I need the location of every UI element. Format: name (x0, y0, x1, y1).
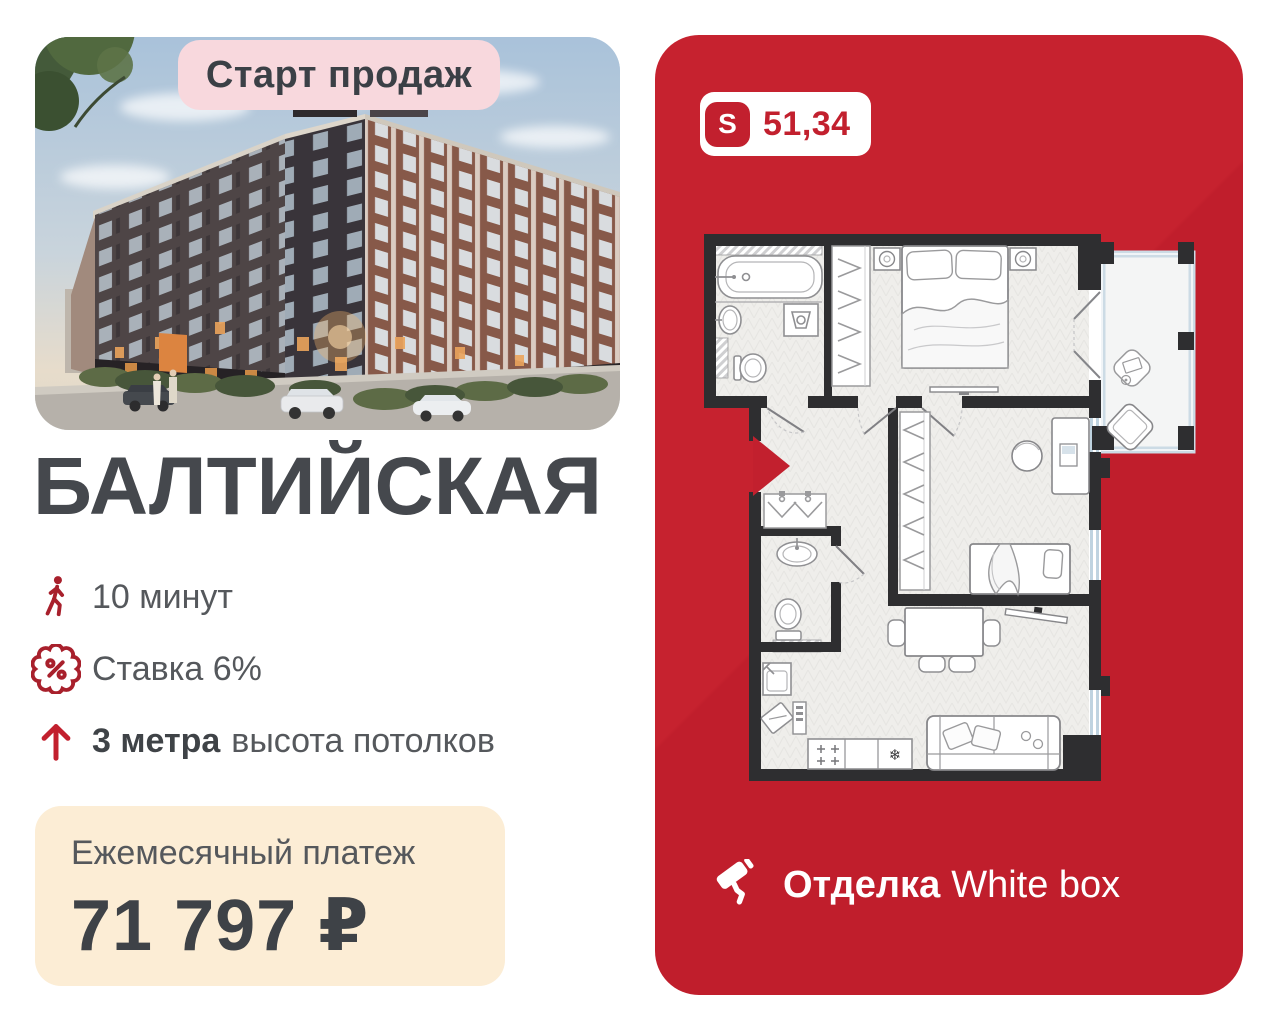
payment-value: 71 797 ₽ (71, 883, 469, 967)
area-letter-chip: S (705, 102, 750, 147)
finish-name: White box (951, 864, 1120, 906)
start-sales-label: Старт продаж (206, 54, 472, 97)
ceiling-height-value: 3 метра (92, 722, 220, 760)
feature-walk-time: 10 минут (30, 572, 495, 622)
monthly-payment-card: Ежемесячный платеж 71 797 ₽ (35, 806, 505, 986)
arrow-up-icon (30, 718, 82, 764)
paint-roller-icon (713, 859, 761, 912)
area-badge: S 51,34 (700, 92, 871, 156)
coat-rack (764, 491, 826, 528)
feature-mortgage-rate-label: Ставка 6% (92, 650, 262, 689)
area-value: 51,34 (763, 105, 851, 144)
building-photo: Старт продаж (35, 37, 620, 430)
feature-ceiling-height-label: 3 метравысота потолков (92, 722, 495, 761)
feature-mortgage-rate: Ставка 6% (30, 644, 495, 694)
project-title: БАЛТИЙСКАЯ (33, 444, 633, 530)
finish-label: ОтделкаWhite box (783, 864, 1120, 907)
ceiling-height-caption: высота потолков (231, 722, 495, 760)
feature-list: 10 минут Ставка 6% (30, 572, 495, 766)
sofa (927, 716, 1060, 770)
fridge-snowflake: ❄ (889, 747, 902, 764)
walking-person-icon (30, 574, 82, 620)
percent-seal-icon (30, 644, 82, 694)
floor-plan: ❄ (700, 230, 1200, 786)
finish-row: ОтделкаWhite box (713, 854, 1120, 916)
floor-plan-card: S 51,34 (655, 35, 1243, 995)
closet-top (832, 246, 870, 386)
payment-label: Ежемесячный платеж (71, 834, 469, 873)
finish-type: Отделка (783, 864, 940, 906)
feature-ceiling-height: 3 метравысота потолков (30, 716, 495, 766)
start-sales-badge: Старт продаж (178, 40, 500, 110)
feature-walk-time-label: 10 минут (92, 578, 233, 617)
